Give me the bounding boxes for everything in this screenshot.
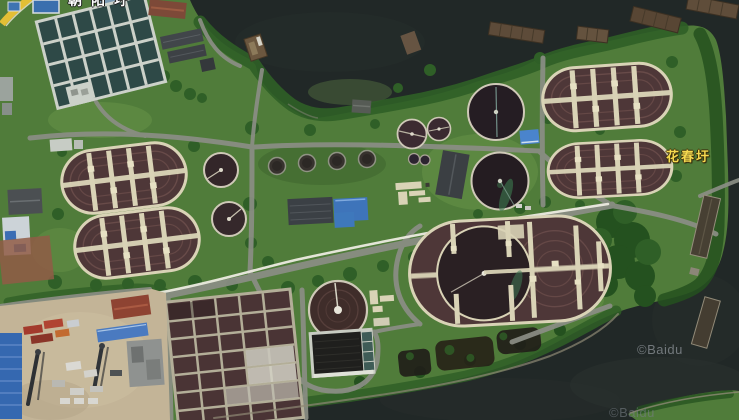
satellite-imagery: [0, 0, 739, 420]
oxidation-ditch-east-2: [545, 137, 675, 200]
map-canvas[interactable]: 朝阳圩 花春圩 ©Baidu ©Baidu: [0, 0, 739, 420]
industrial-yard: [0, 289, 170, 420]
oxidation-ditch-east-1: [539, 59, 675, 134]
blue-shed: [519, 129, 539, 145]
oxidation-ditch-south-large: [405, 212, 614, 331]
blue-warehouse: [0, 333, 22, 419]
gray-structure: [127, 339, 165, 387]
filter-building-south: [309, 328, 376, 378]
aeration-basin-grid: [164, 287, 305, 420]
